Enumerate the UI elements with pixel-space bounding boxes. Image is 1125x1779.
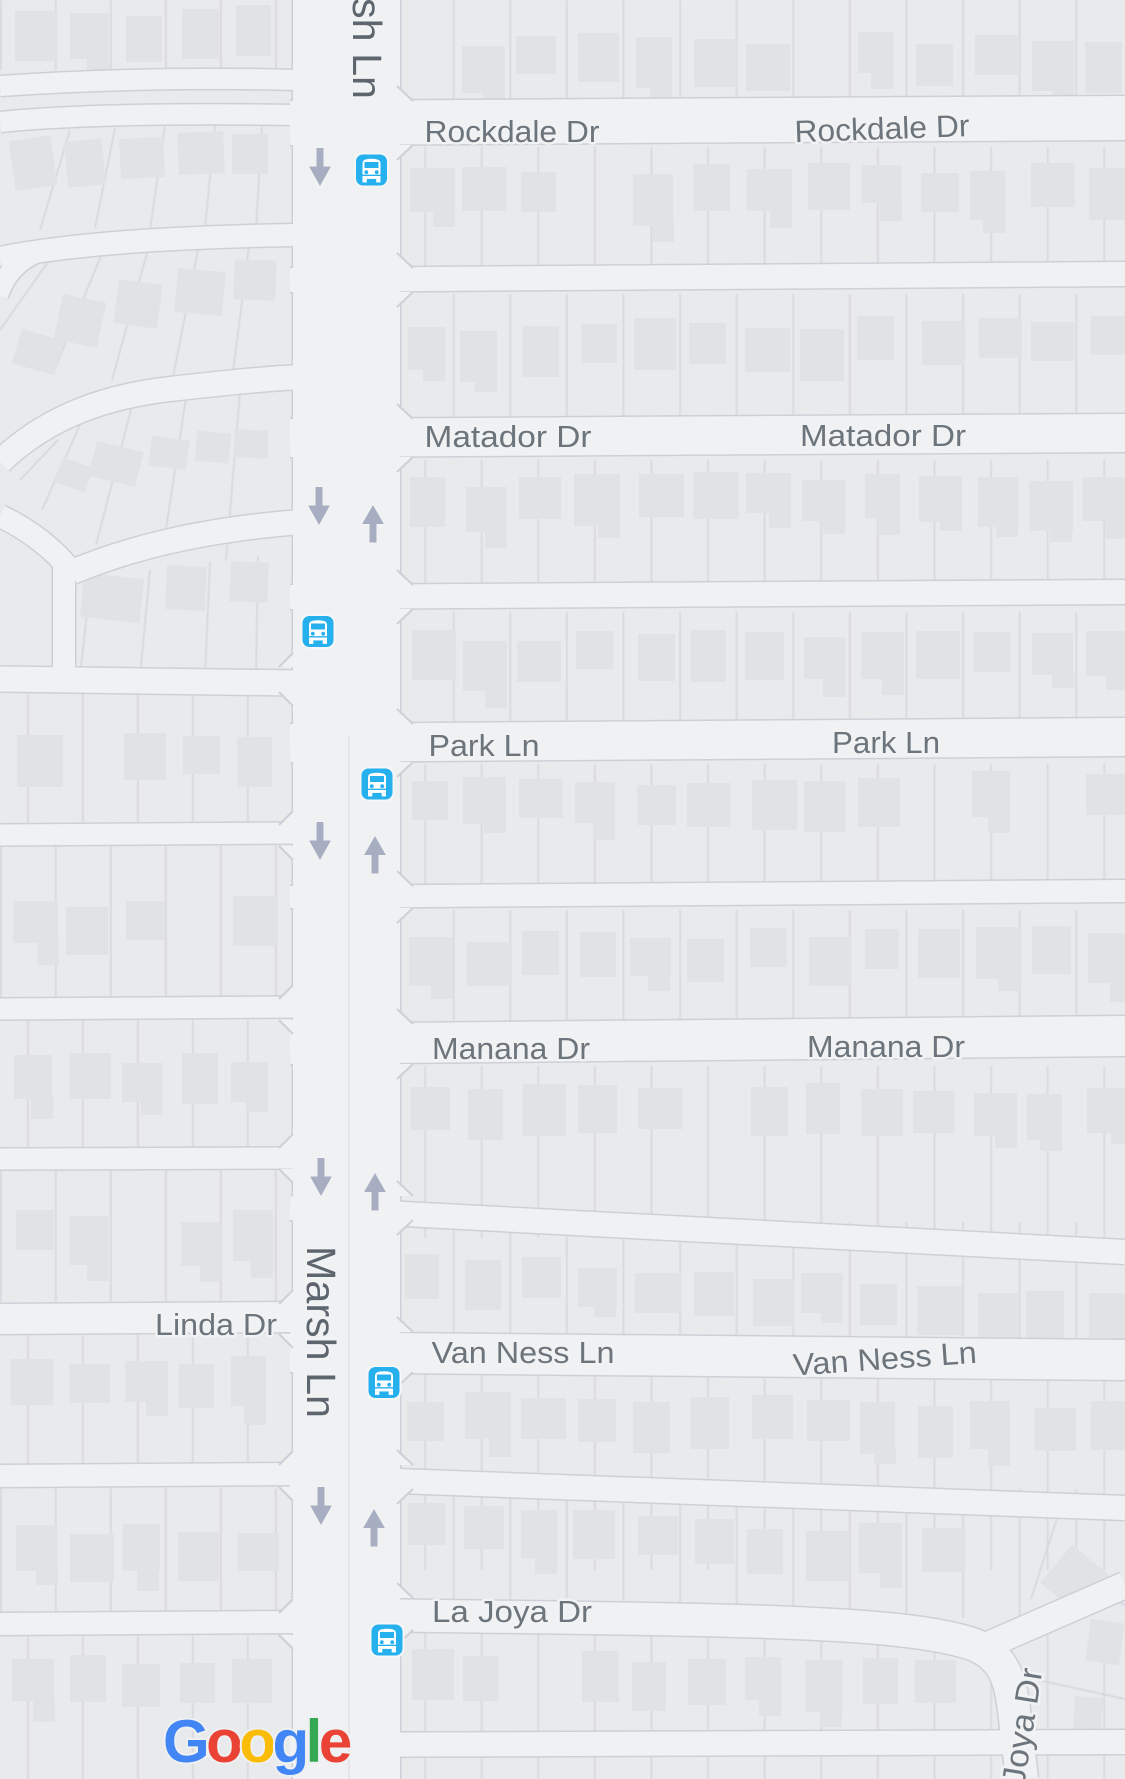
svg-text:Marsh Ln: Marsh Ln bbox=[344, 0, 390, 99]
svg-text:Marsh Ln: Marsh Ln bbox=[298, 1246, 344, 1418]
svg-text:Rockdale Dr: Rockdale Dr bbox=[425, 114, 600, 149]
svg-text:Manana Dr: Manana Dr bbox=[807, 1029, 965, 1064]
svg-text:Manana Dr: Manana Dr bbox=[432, 1031, 590, 1066]
svg-text:Park Ln: Park Ln bbox=[429, 728, 540, 763]
svg-text:Matador Dr: Matador Dr bbox=[800, 418, 966, 453]
svg-text:La Joya Dr: La Joya Dr bbox=[432, 1594, 592, 1629]
svg-text:Rockdale Dr: Rockdale Dr bbox=[794, 108, 970, 149]
svg-text:Linda Dr: Linda Dr bbox=[155, 1307, 277, 1342]
svg-text:Park Ln: Park Ln bbox=[832, 725, 940, 760]
svg-text:Matador Dr: Matador Dr bbox=[425, 419, 592, 454]
svg-text:Van Ness Ln: Van Ness Ln bbox=[432, 1335, 615, 1370]
svg-text:Google: Google bbox=[163, 1708, 351, 1775]
